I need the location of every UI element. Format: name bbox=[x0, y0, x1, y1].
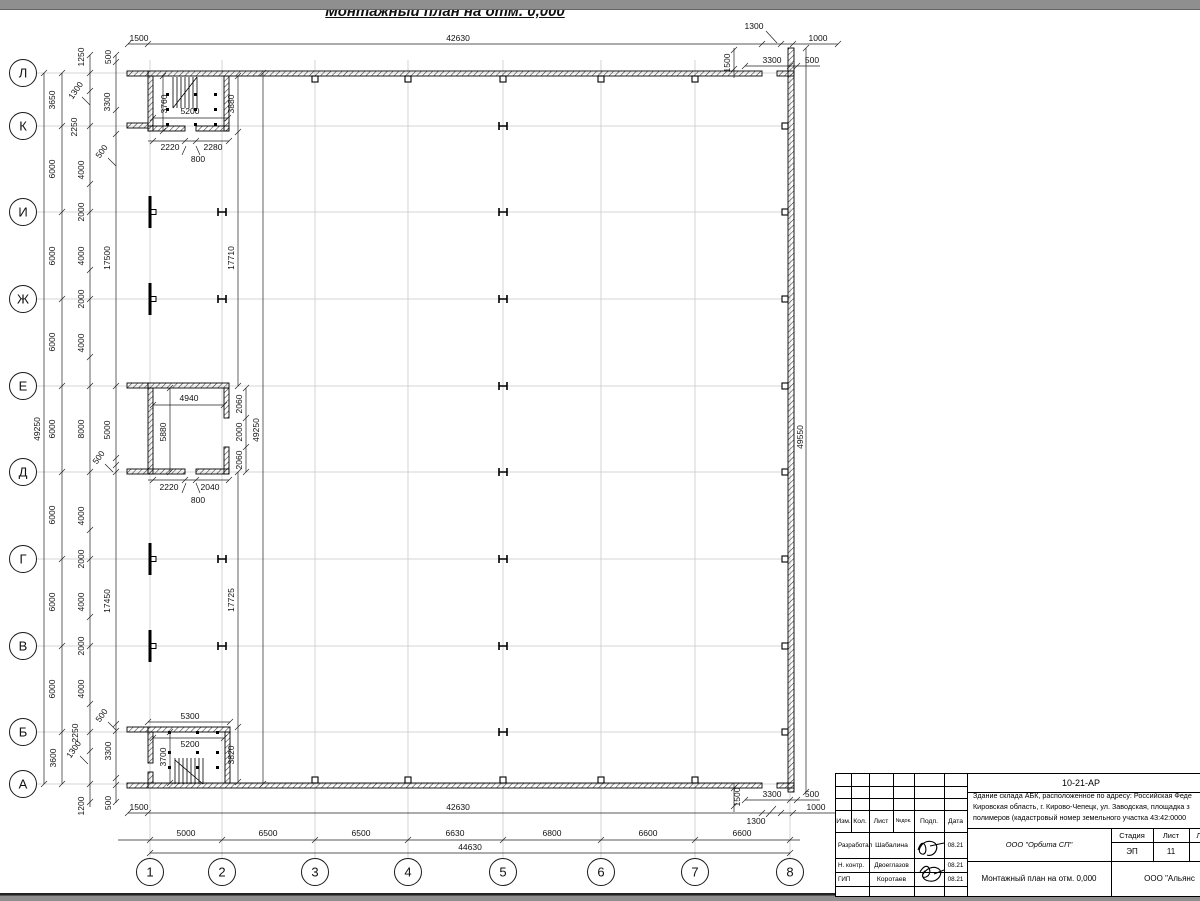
dim-label: 500 bbox=[103, 50, 113, 64]
col-axis-label: 3 bbox=[311, 865, 318, 880]
dim-label: 4000 bbox=[76, 506, 86, 525]
dim-label: 1300 bbox=[747, 816, 766, 826]
right-wall bbox=[788, 48, 794, 792]
col-axis-label: 4 bbox=[404, 865, 411, 880]
dim-label: 6500 bbox=[352, 828, 371, 838]
dim-label: 6000 bbox=[47, 505, 57, 524]
stamp-date: 08.21 bbox=[944, 832, 967, 858]
dim-label: 3880 bbox=[226, 94, 236, 113]
dim-label: 17725 bbox=[226, 588, 236, 612]
dim-label: 6500 bbox=[259, 828, 278, 838]
stamp-description-line: Кировская область, г. Кирово-Чепецк, ул.… bbox=[973, 801, 1200, 812]
col-axis-label: 8 bbox=[786, 865, 793, 880]
dim-label: 1500 bbox=[130, 33, 149, 43]
col-axis-label: 6 bbox=[597, 865, 604, 880]
stamp-name: Двоеглазов bbox=[869, 858, 914, 872]
dim-label: 5880 bbox=[158, 422, 168, 441]
dim-label: 2000 bbox=[76, 636, 86, 655]
signature-scribble bbox=[912, 830, 946, 888]
stamp-header-ndoc: №док. bbox=[893, 810, 914, 832]
dim-label: 3820 bbox=[226, 745, 236, 764]
dim-label: 6000 bbox=[47, 159, 57, 178]
dim-label: 2040 bbox=[201, 482, 220, 492]
dim-label: 1300 bbox=[745, 21, 764, 31]
dim-label: 2280 bbox=[204, 142, 223, 152]
dim-label: 42630 bbox=[446, 802, 470, 812]
dim-label: 3600 bbox=[48, 748, 58, 767]
stamp-stage-header: Стадия bbox=[1111, 828, 1153, 842]
dim-label: 17710 bbox=[226, 246, 236, 270]
dim-label: 1200 bbox=[76, 796, 86, 815]
dim-label: 2060 bbox=[234, 450, 244, 469]
dim-label: 500 bbox=[103, 796, 113, 810]
dim-label: 5200 bbox=[181, 739, 200, 749]
dim-label: 3300 bbox=[763, 55, 782, 65]
dim-label: 3300 bbox=[103, 741, 113, 760]
dim-label: 4000 bbox=[76, 592, 86, 611]
dim-label: 5000 bbox=[177, 828, 196, 838]
dim-label: 1250 bbox=[76, 47, 86, 66]
stamp-drawing-title: Монтажный план на отм. 0,000 bbox=[967, 861, 1111, 896]
dim-label: 500 bbox=[805, 55, 819, 65]
row-axis-label: К bbox=[19, 119, 27, 134]
stamp-name: Коротаев bbox=[869, 872, 914, 886]
dim-label: 500 bbox=[93, 706, 109, 724]
row-axis-label: В bbox=[19, 639, 28, 654]
dim-label: 49250 bbox=[32, 417, 42, 441]
stairs-icon bbox=[173, 77, 197, 108]
dim-label: 6800 bbox=[543, 828, 562, 838]
stamp-name: Шабалина bbox=[869, 832, 914, 858]
dim-label: 500 bbox=[805, 789, 819, 799]
walls-layer bbox=[127, 48, 794, 792]
stamp-sheets-header: Листов bbox=[1189, 828, 1200, 842]
dim-label: 1500 bbox=[732, 787, 742, 806]
stamp-line bbox=[836, 786, 967, 787]
col-axis-label: 7 bbox=[691, 865, 698, 880]
dim-label: 6000 bbox=[47, 332, 57, 351]
dim-label: 1500 bbox=[722, 53, 732, 72]
stamp-header-data: Дата bbox=[944, 810, 967, 832]
dim-label: 2000 bbox=[76, 549, 86, 568]
dim-label: 5000 bbox=[102, 420, 112, 439]
stamp-line bbox=[836, 886, 967, 887]
dim-label: 1000 bbox=[807, 802, 826, 812]
dim-label: 4000 bbox=[76, 333, 86, 352]
dim-label: 6600 bbox=[733, 828, 752, 838]
stamp-role: ГИП bbox=[838, 872, 869, 886]
dim-label: 2250 bbox=[69, 117, 79, 136]
dim-label: 6000 bbox=[47, 419, 57, 438]
window-chrome-top bbox=[0, 0, 1200, 10]
stamp-header-izm: Изм. bbox=[836, 810, 851, 832]
dim-label: 4000 bbox=[76, 679, 86, 698]
bottom-wall bbox=[148, 783, 762, 788]
dim-label: 5200 bbox=[181, 106, 200, 116]
dim-label: 3700 bbox=[158, 747, 168, 766]
dim-label: 500 bbox=[93, 142, 109, 160]
dim-label: 6630 bbox=[446, 828, 465, 838]
dim-label: 4000 bbox=[76, 160, 86, 179]
stamp-stage-value: ЭП bbox=[1111, 842, 1153, 861]
dim-label: 2000 bbox=[76, 202, 86, 221]
dim-label: 44630 bbox=[458, 842, 482, 852]
dim-label: 1500 bbox=[130, 802, 149, 812]
dim-label: 6000 bbox=[47, 592, 57, 611]
stamp-header-podp: Подп. bbox=[914, 810, 944, 832]
dim-label: 2220 bbox=[160, 482, 179, 492]
stamp-role: Н. контр. bbox=[838, 858, 869, 872]
dim-label: 4000 bbox=[76, 246, 86, 265]
dim-label: 800 bbox=[191, 495, 205, 505]
title-block: Изм. Кол. Лист №док. Подп. Дата Разработ… bbox=[835, 773, 1200, 897]
dim-label: 1000 bbox=[809, 33, 828, 43]
stamp-role: Разработал bbox=[838, 832, 869, 858]
dim-label: 3300 bbox=[763, 789, 782, 799]
dim-label: 17450 bbox=[102, 589, 112, 613]
stamp-sheets-value: 1 bbox=[1189, 842, 1200, 861]
row-axis-label: Д bbox=[19, 465, 28, 480]
floor-plan-drawing: ЛКИЖЕДГВБА 12345678 15004263013001000150… bbox=[0, 0, 1200, 900]
dim-label: 2000 bbox=[234, 422, 244, 441]
stamp-company: ООО "Орбита СП" bbox=[967, 828, 1111, 861]
stamp-line bbox=[836, 798, 967, 799]
dim-label: 3300 bbox=[102, 92, 112, 111]
stamp-description-line: Здание склада АБК, расположенное по адре… bbox=[973, 790, 1200, 801]
stamp-header-kol: Кол. bbox=[851, 810, 869, 832]
col-axis-label: 1 bbox=[146, 865, 153, 880]
col-axis-bubbles: 12345678 bbox=[137, 859, 804, 886]
row-axis-label: Б bbox=[19, 725, 28, 740]
dim-label: 17500 bbox=[102, 246, 112, 270]
dim-label: 6000 bbox=[47, 246, 57, 265]
dim-label: 2220 bbox=[161, 142, 180, 152]
dim-label: 3760 bbox=[159, 94, 169, 113]
dim-label: 500 bbox=[90, 448, 106, 466]
dim-label: 6000 bbox=[47, 679, 57, 698]
dim-label: 42630 bbox=[446, 33, 470, 43]
stamp-date: 08.21 bbox=[944, 872, 967, 886]
dim-label: 800 bbox=[191, 154, 205, 164]
dim-label: 6600 bbox=[639, 828, 658, 838]
dim-label: 49550 bbox=[795, 425, 805, 449]
room-column-dots bbox=[166, 93, 219, 769]
row-axis-label: Г bbox=[19, 552, 26, 567]
dim-label: 2060 bbox=[234, 394, 244, 413]
col-axis-label: 5 bbox=[499, 865, 506, 880]
stairs-icon bbox=[175, 758, 203, 784]
dim-label: 4940 bbox=[180, 393, 199, 403]
stamp-header-list: Лист bbox=[869, 810, 893, 832]
row-axis-label: Е bbox=[19, 379, 28, 394]
stamp-sheet-value: 11 bbox=[1153, 842, 1189, 861]
row-axis-label: Ж bbox=[17, 292, 29, 307]
row-axis-label: И bbox=[18, 205, 27, 220]
row-axis-label: А bbox=[19, 777, 28, 792]
dim-label: 49250 bbox=[251, 418, 261, 442]
stamp-contractor: ООО "Альянс bbox=[1111, 861, 1200, 896]
stamp-description-line: полимеров (кадастровый номер земельного … bbox=[973, 812, 1200, 823]
stamp-sheet-header: Лист bbox=[1153, 828, 1189, 842]
dim-label: 2000 bbox=[76, 289, 86, 308]
stamp-date: 08.21 bbox=[944, 858, 967, 872]
col-axis-label: 2 bbox=[218, 865, 225, 880]
dim-label: 5300 bbox=[181, 711, 200, 721]
dim-label: 3650 bbox=[47, 90, 57, 109]
row-axis-label: Л bbox=[19, 66, 28, 81]
dim-label: 8000 bbox=[76, 419, 86, 438]
